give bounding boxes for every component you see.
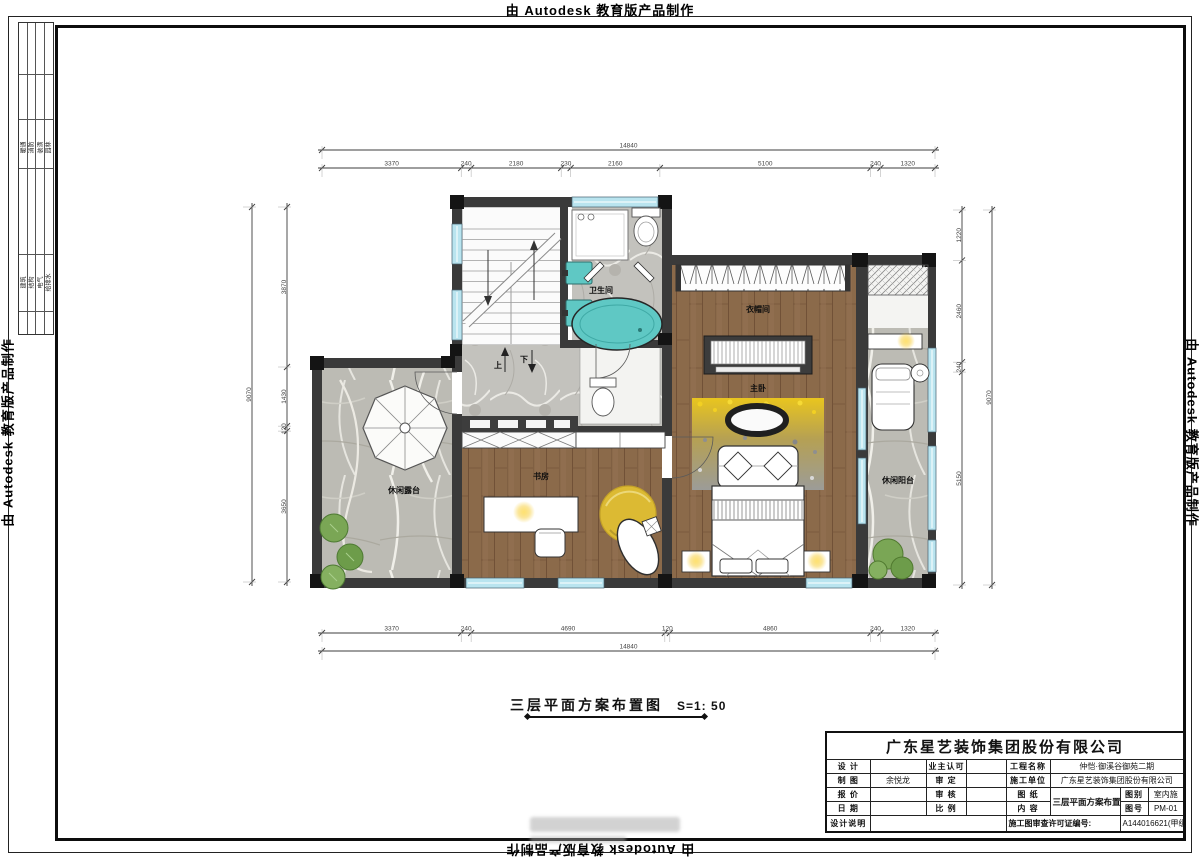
tb-label-design-notes: 设计说明 xyxy=(826,816,870,833)
toilet-tank xyxy=(590,378,616,387)
tb-value-drawing-name: 三层平面方案布置图 xyxy=(1050,788,1120,816)
nightstand-lamp-glow xyxy=(686,551,706,571)
tb-value-scale xyxy=(966,802,1006,816)
dim-left-overall: 9070 xyxy=(243,203,256,586)
tb-value-design xyxy=(870,760,926,774)
cabinet xyxy=(576,432,665,448)
company-name: 广东星艺装饰集团股份有限公司 xyxy=(826,732,1184,760)
tb-label-design: 设 计 xyxy=(826,760,870,774)
column xyxy=(922,574,936,588)
room-label-study: 书房 xyxy=(533,471,549,481)
svg-text:9070: 9070 xyxy=(986,390,993,405)
svg-text:240: 240 xyxy=(461,626,472,633)
svg-text:2160: 2160 xyxy=(608,161,623,168)
svg-text:1320: 1320 xyxy=(901,161,916,168)
svg-text:5150: 5150 xyxy=(956,471,963,486)
room-label-stair-up: 上 xyxy=(494,360,502,370)
bathtub xyxy=(572,298,662,350)
tb-value-quote xyxy=(870,788,926,802)
wall xyxy=(575,426,672,432)
svg-text:2180: 2180 xyxy=(509,161,524,168)
column xyxy=(450,344,462,356)
room-label-stair-down: 下 xyxy=(520,355,528,364)
dim-top-segments: 33702402180230216051002401320 xyxy=(318,161,939,178)
wall xyxy=(312,358,455,368)
svg-text:4690: 4690 xyxy=(561,626,576,633)
svg-text:4860: 4860 xyxy=(763,626,778,633)
dresser-slats xyxy=(711,341,805,364)
faucet xyxy=(562,270,568,276)
shower-control xyxy=(578,214,584,220)
bathtub-drain xyxy=(638,328,642,332)
dim-right-segments: 122024602405150 xyxy=(953,206,966,589)
room-label-master-bedroom: 主卧 xyxy=(750,383,766,393)
svg-text:1220: 1220 xyxy=(956,228,963,243)
plant xyxy=(869,561,887,579)
rug-table xyxy=(728,406,786,434)
wall xyxy=(856,328,868,578)
column xyxy=(450,195,464,209)
plan-title-text: 三层平面方案布置图 xyxy=(510,697,663,713)
tb-label-project-name: 工程名称 xyxy=(1006,760,1050,774)
dim-bottom-segments: 3370240469012048602401320 xyxy=(318,626,939,643)
svg-text:240: 240 xyxy=(870,626,881,633)
cabinet-slot xyxy=(470,420,490,428)
svg-text:230: 230 xyxy=(560,161,571,168)
svg-text:1320: 1320 xyxy=(901,626,916,633)
plan-title-underline xyxy=(528,716,704,718)
svg-text:2460: 2460 xyxy=(956,304,963,319)
tb-label-drawing: 图 纸 xyxy=(1006,788,1050,802)
foot-bench-cushion xyxy=(756,559,788,573)
plan-scale-text: S=1: 50 xyxy=(677,699,726,713)
tb-design-notes-blank xyxy=(870,816,1006,833)
tb-label-drafting: 制 图 xyxy=(826,774,870,788)
tb-value-contractor: 广东星艺装饰集团股份有限公司 xyxy=(1050,774,1184,788)
faucet xyxy=(562,310,568,316)
tb-label-category: 图别 xyxy=(1120,788,1148,802)
svg-text:3370: 3370 xyxy=(384,161,399,168)
title-block: 广东星艺装饰集团股份有限公司 设 计 业主认可 工程名称 仲恺·御溪谷御苑二期 … xyxy=(825,731,1185,833)
tb-label-scale: 比 例 xyxy=(926,802,966,816)
svg-text:9070: 9070 xyxy=(246,387,253,402)
tb-label-content: 内 容 xyxy=(1006,802,1050,816)
column xyxy=(658,333,672,345)
svg-text:3650: 3650 xyxy=(281,499,288,514)
tb-label-contractor: 施工单位 xyxy=(1006,774,1050,788)
svg-text:120: 120 xyxy=(281,423,288,434)
dim-top-overall: 14840 xyxy=(318,143,939,160)
plan-title: 三层平面方案布置图S=1: 50 xyxy=(510,695,750,715)
watermark xyxy=(530,817,690,857)
lounge-headrest xyxy=(876,368,910,380)
dim-bottom-overall: 14840 xyxy=(318,644,939,661)
room-label-balcony: 休闲阳台 xyxy=(881,475,914,485)
toilet-bowl xyxy=(634,216,658,246)
tb-label-owner-approval: 业主认可 xyxy=(926,760,966,774)
tb-value-approval xyxy=(966,774,1006,788)
tb-value-project-name: 仲恺·御溪谷御苑二期 xyxy=(1050,760,1184,774)
svg-text:1430: 1430 xyxy=(281,389,288,404)
dim-left-segments: 387014301203650 xyxy=(278,203,291,586)
svg-text:14840: 14840 xyxy=(619,644,637,651)
wardrobe-end xyxy=(845,265,850,291)
tb-value-drafting: 余悦龙 xyxy=(870,774,926,788)
column xyxy=(852,574,868,588)
desk-lamp-glow xyxy=(513,501,535,523)
toilet-bowl xyxy=(592,388,614,416)
svg-text:3870: 3870 xyxy=(281,279,288,294)
svg-text:3370: 3370 xyxy=(384,626,399,633)
door-opening xyxy=(452,372,462,414)
room-label-terrace: 休闲露台 xyxy=(387,485,420,495)
column xyxy=(658,574,672,588)
room-label-bathroom: 卫生间 xyxy=(589,285,613,295)
cabinet-slot xyxy=(526,420,546,428)
tb-label-sheet-no: 图号 xyxy=(1120,802,1148,816)
svg-text:240: 240 xyxy=(461,161,472,168)
wall xyxy=(312,368,322,588)
dresser-slot xyxy=(716,367,800,372)
svg-text:14840: 14840 xyxy=(619,143,637,150)
wall xyxy=(856,265,868,328)
tb-value-review xyxy=(966,788,1006,802)
svg-text:5100: 5100 xyxy=(758,161,773,168)
tb-value-sheet-no: PM-01 xyxy=(1148,802,1184,816)
svg-text:240: 240 xyxy=(870,161,881,168)
plant xyxy=(891,557,913,579)
dim-right-overall: 9070 xyxy=(983,206,996,589)
counter-lamp-glow xyxy=(897,332,915,350)
shower-control xyxy=(588,214,594,220)
svg-text:120: 120 xyxy=(662,626,673,633)
tb-permit-value: A144016621(甲级) xyxy=(1120,816,1184,833)
cabinet-slot xyxy=(554,420,570,428)
tb-label-approval: 审 定 xyxy=(926,774,966,788)
side-table xyxy=(911,364,929,382)
foot-bench-cushion xyxy=(720,559,752,573)
column xyxy=(310,356,324,370)
drawing-sheet: 由 Autodesk 教育版产品制作 由 Autodesk 教育版产品制作 由 … xyxy=(0,0,1200,859)
tb-label-date: 日 期 xyxy=(826,802,870,816)
parasol-pole xyxy=(400,423,410,433)
wardrobe-end xyxy=(676,265,681,291)
column xyxy=(450,574,464,588)
room-label-cloakroom: 衣帽间 xyxy=(746,304,770,314)
cabinet-slot xyxy=(498,420,518,428)
wall xyxy=(672,255,936,265)
svg-text:240: 240 xyxy=(956,361,963,372)
tb-value-date xyxy=(870,802,926,816)
nightstand-lamp-glow xyxy=(807,551,827,571)
wardrobe-clothes xyxy=(676,265,850,291)
tb-label-review: 审 核 xyxy=(926,788,966,802)
closet-hatch xyxy=(868,265,928,295)
column xyxy=(441,356,455,368)
column xyxy=(658,195,672,209)
tb-permit-label: 施工图审查许可证编号: xyxy=(1006,816,1120,833)
bed-runner-stripes xyxy=(712,500,804,520)
tb-label-quote: 报 价 xyxy=(826,788,870,802)
column xyxy=(852,253,868,267)
tb-value-category: 室内施 xyxy=(1148,788,1184,802)
tb-value-owner-approval xyxy=(966,760,1006,774)
wall xyxy=(662,207,672,578)
